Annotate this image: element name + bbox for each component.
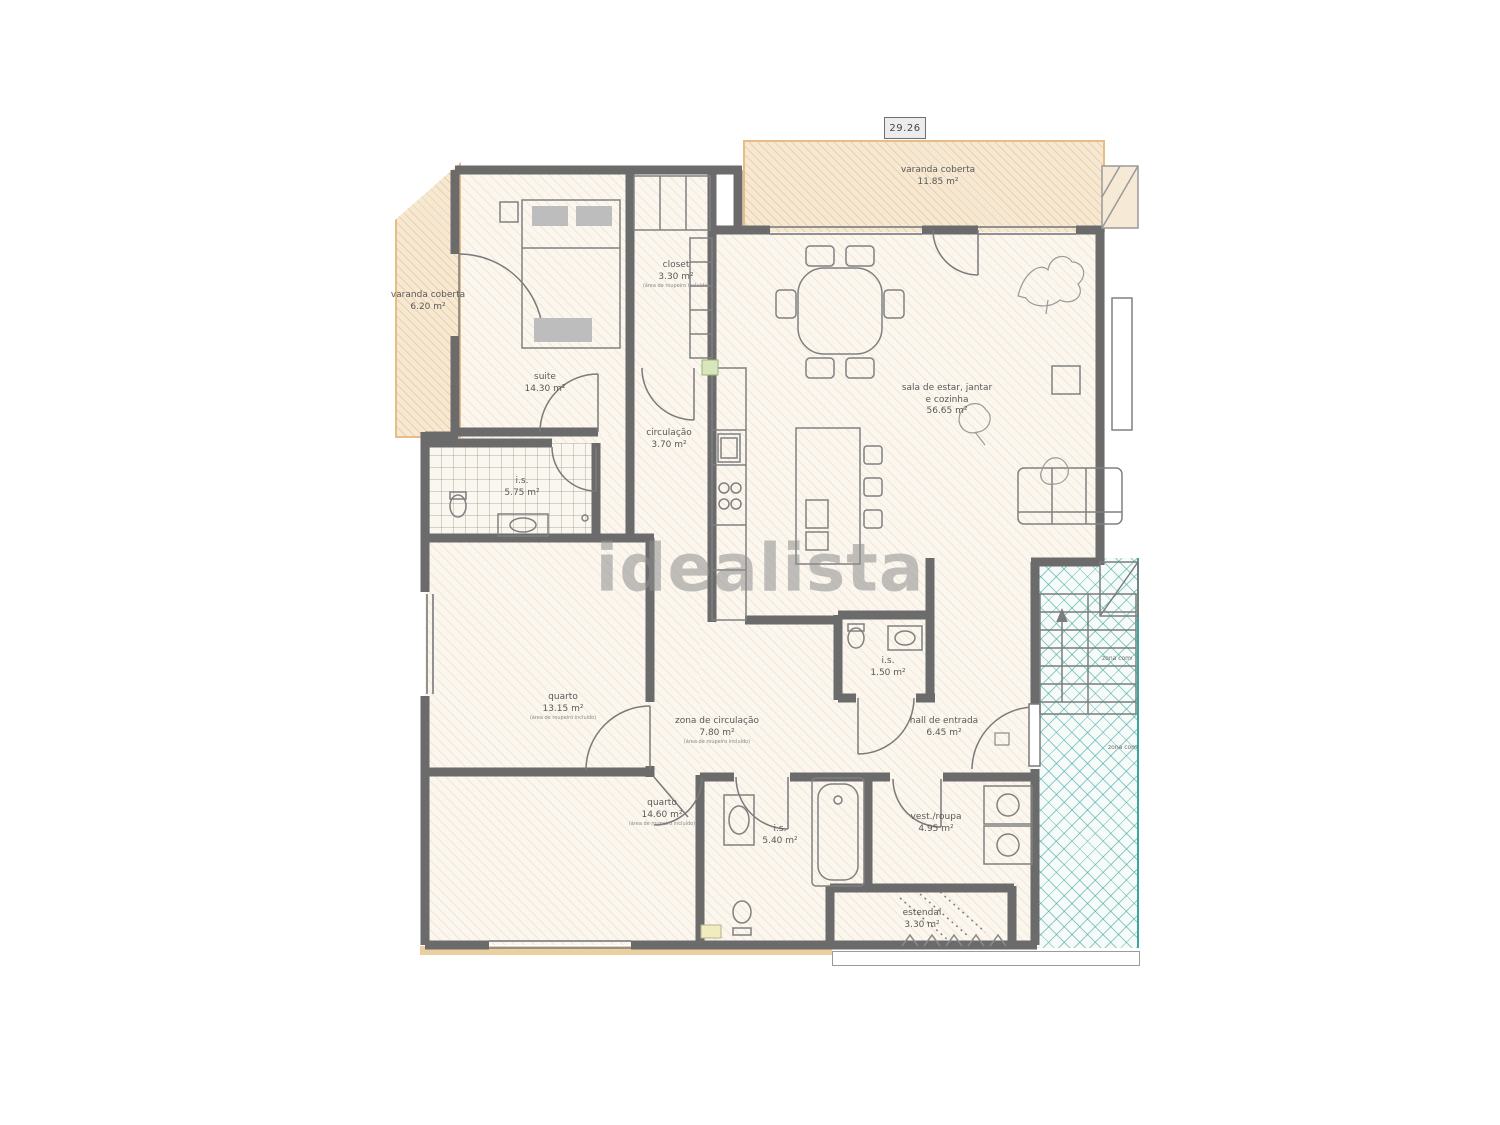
room-label-is-small: i.s.1.50 m²	[870, 656, 905, 679]
plant-sketch-icon	[1018, 256, 1084, 305]
room-label-zona-comum-2: zona comum	[1108, 744, 1138, 751]
tv-sideboard-icon	[1112, 298, 1132, 430]
stairs-icon	[1040, 562, 1138, 714]
idealista-watermark: idealista	[596, 530, 925, 607]
intercom-icon	[995, 733, 1009, 745]
room-label-vest: vest./roupa4.95 m²	[911, 812, 962, 835]
bathroom-fixtures-small	[848, 624, 922, 650]
vent-marker	[702, 360, 718, 375]
room-label-quarto2: quarto14.60 m² (área de roupeiro incluíd…	[629, 798, 695, 828]
entrance-door-leaf	[1029, 704, 1040, 766]
room-label-estendal: estendal3.30 m²	[903, 908, 942, 931]
room-label-circulacao: circulação3.70 m²	[646, 428, 692, 451]
planter-box-icon	[1102, 166, 1138, 228]
room-label-quarto1: quarto13.15 m² (área de roupeiro incluíd…	[530, 692, 596, 722]
room-label-varanda-left: varanda coberta6.20 m²	[391, 290, 465, 313]
room-label-zona-circulacao: zona de circulação7.80 m² (área de roupe…	[675, 716, 759, 746]
sketch-figures	[959, 256, 1084, 484]
bed-icon	[500, 200, 620, 348]
room-label-hall: hall de entrada6.45 m²	[910, 716, 978, 739]
washer-dryer-icon	[984, 786, 1032, 864]
room-label-sala: sala de estar, jantar e cozinha 56.65 m²	[902, 383, 992, 418]
room-label-varanda-top: varanda coberta11.85 m²	[901, 165, 975, 188]
bathroom-fixtures-main	[724, 778, 864, 935]
marker-yellow	[701, 925, 721, 938]
sofa-icon	[1018, 468, 1122, 524]
figure-sketch-icon	[1041, 458, 1069, 485]
room-label-zona-comum-1: zona comum	[1102, 655, 1132, 662]
room-label-closet: closet3.30 m² (área de roupeiro incluído…	[643, 260, 709, 290]
room-label-is-main: i.s.5.40 m²	[762, 824, 797, 847]
side-table-icon	[1052, 366, 1080, 394]
dimension-label: 29.26	[884, 117, 926, 139]
dining-table-icon	[776, 246, 904, 378]
room-label-suite: suite14.30 m²	[524, 372, 565, 395]
floor-plan: 29.26 varanda coberta6.20 m² varanda cob…	[0, 0, 1500, 1125]
bathtub-icon	[812, 778, 864, 886]
room-label-is-suite: i.s.5.75 m²	[504, 476, 539, 499]
